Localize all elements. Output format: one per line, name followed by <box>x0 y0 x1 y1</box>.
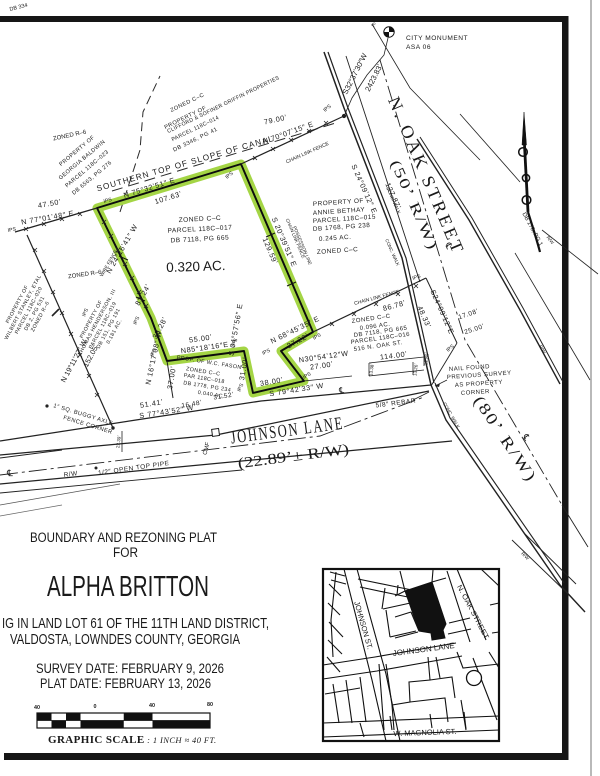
svg-text:VALDOSTA, LOWNDES COUNTY, GEOR: VALDOSTA, LOWNDES COUNTY, GEORGIA <box>10 631 240 648</box>
svg-text:ASA 06: ASA 06 <box>406 44 431 51</box>
svg-text:℄: ℄ <box>6 468 13 478</box>
svg-text:℄: ℄ <box>338 386 345 395</box>
svg-text:ALPHA BRITTON: ALPHA BRITTON <box>47 571 209 603</box>
svg-text:IG IN LAND LOT 61 OF THE 11TH: IG IN LAND LOT 61 OF THE 11TH LAND DISTR… <box>2 615 269 632</box>
svg-text:SURVEY DATE: FEBRUARY 9, 2026: SURVEY DATE: FEBRUARY 9, 2026 <box>36 660 224 676</box>
svg-text:BOUNDARY AND REZONING PLAT: BOUNDARY AND REZONING PLAT <box>30 530 217 545</box>
svg-text:0: 0 <box>94 704 97 710</box>
svg-text:GRAPHIC SCALE : 1 INCH ≈ 40: GRAPHIC SCALE : 1 INCH ≈ 40 FT. <box>48 734 217 746</box>
svg-text:80: 80 <box>207 702 213 708</box>
svg-text:CITY MONUMENT: CITY MONUMENT <box>406 35 468 42</box>
svg-text:PLAT DATE: FEBRUARY 13, 2026: PLAT DATE: FEBRUARY 13, 2026 <box>40 675 211 691</box>
svg-text:FOR: FOR <box>113 545 138 560</box>
svg-text:40: 40 <box>34 705 40 711</box>
svg-text:40: 40 <box>149 703 155 709</box>
svg-text:0.320 AC.: 0.320 AC. <box>166 258 226 275</box>
